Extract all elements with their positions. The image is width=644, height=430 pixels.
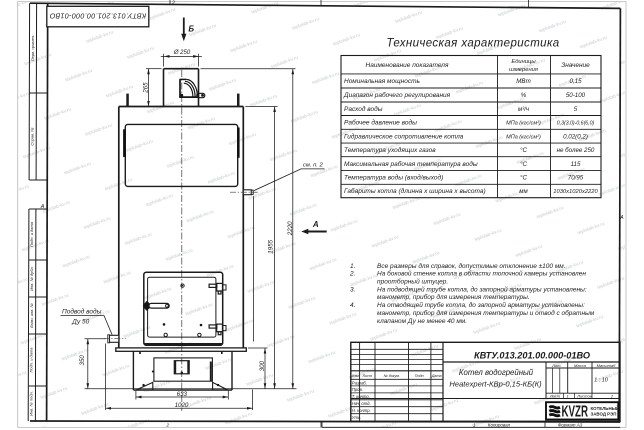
svg-text:1: 1 (566, 394, 568, 399)
svg-text:265: 265 (142, 82, 149, 94)
svg-text:Все размеры для справок, допус: Все размеры для справок, допустимые откл… (377, 262, 566, 270)
svg-text:МПа (кгс/см²): МПа (кгс/см²) (506, 121, 541, 127)
svg-text:МВт: МВт (516, 78, 530, 85)
svg-text:Масса: Масса (574, 363, 587, 368)
svg-text:Наименование показателя: Наименование показателя (366, 62, 449, 69)
svg-text:Лист: Лист (362, 374, 373, 378)
svg-text:Инв. № дубл.: Инв. № дубл. (29, 266, 34, 291)
svg-text:Б: Б (188, 25, 194, 34)
svg-text:Формат А3: Формат А3 (558, 422, 583, 427)
svg-text:115: 115 (571, 161, 581, 168)
svg-text:Т. контр.: Т. контр. (352, 394, 370, 399)
svg-text:Ø 250: Ø 250 (173, 50, 191, 56)
svg-text:Дата: Дата (431, 374, 442, 378)
svg-text:1030х1020х2220: 1030х1020х2220 (553, 189, 598, 195)
svg-text:4.: 4. (350, 302, 356, 309)
svg-text:Максимальная рабочая температу: Максимальная рабочая температура воды (344, 160, 478, 168)
svg-text:Перв. примен.: Перв. примен. (30, 35, 35, 62)
svg-text:клапаном Ду не менее 40 мм.: клапаном Ду не менее 40 мм. (377, 318, 467, 325)
svg-text:Лист: Лист (549, 394, 561, 399)
svg-text:300: 300 (259, 360, 266, 371)
svg-text:Взам. инв. №: Взам. инв. № (29, 302, 34, 327)
svg-text:Пров.: Пров. (352, 387, 363, 392)
svg-text:На боковой стенке котла в обла: На боковой стенке котла в области топочн… (377, 270, 586, 278)
svg-text:Листов: Листов (576, 394, 592, 399)
svg-text:МПа (кгс/см²): МПа (кгс/см²) (506, 134, 541, 140)
svg-text:70/95: 70/95 (568, 175, 584, 182)
svg-text:На отводящей трубе котла, до з: На отводящей трубе котла, до запорной ар… (377, 301, 585, 309)
svg-text:Котел водогрейный: Котел водогрейный (459, 368, 534, 377)
svg-text:Heatexpert-КВр-0,15-КБ(К): Heatexpert-КВр-0,15-КБ(К) (449, 379, 542, 388)
svg-text:Рабочее давление воды: Рабочее давление воды (344, 119, 417, 127)
svg-text:А: А (312, 220, 319, 229)
svg-text:0,02(0,2): 0,02(0,2) (563, 133, 588, 140)
svg-text:манометр, прибор для измерения: манометр, прибор для измерения температу… (377, 293, 530, 301)
svg-text:1.: 1. (350, 263, 356, 270)
svg-text:Копировал: Копировал (488, 422, 511, 427)
svg-text:А: А (40, 204, 45, 210)
svg-text:Справ. №: Справ. № (30, 127, 35, 146)
svg-text:1020: 1020 (175, 402, 189, 409)
svg-text:°С: °С (520, 175, 527, 182)
svg-text:0,3(3,0)-0,6(6,0): 0,3(3,0)-0,6(6,0) (557, 121, 595, 127)
svg-text:КОТЕЛЬНЫЙ: КОТЕЛЬНЫЙ (591, 406, 620, 411)
svg-text:1 : 10: 1 : 10 (594, 377, 609, 383)
svg-text:1955: 1955 (267, 239, 274, 253)
svg-text:Н. контр.: Н. контр. (352, 408, 371, 413)
svg-text:5: 5 (574, 106, 578, 113)
svg-text:°С: °С (520, 147, 527, 154)
svg-text:Диапазон рабочего регулировани: Диапазон рабочего регулирования (343, 91, 451, 99)
svg-text:Подп. и дата: Подп. и дата (29, 347, 34, 373)
svg-text:%: % (521, 92, 527, 99)
svg-text:Температура воды (вход/выход): Температура воды (вход/выход) (344, 174, 443, 182)
svg-text:350: 350 (79, 355, 86, 366)
svg-text:Габариты котла (длинна х ширин: Габариты котла (длинна х ширина х высота… (344, 187, 486, 195)
svg-text:КВТУ.013.201.00.000-01ВО: КВТУ.013.201.00.000-01ВО (49, 11, 146, 20)
svg-text:измерения: измерения (509, 67, 538, 73)
svg-text:Единицы: Единицы (511, 59, 536, 65)
svg-text:Расход воды: Расход воды (344, 105, 383, 113)
svg-text:Нач. отд.: Нач. отд. (352, 401, 371, 406)
svg-text:мм: мм (519, 188, 528, 195)
svg-text:3.: 3. (350, 286, 356, 293)
svg-text:Подп.: Подп. (415, 374, 425, 378)
svg-text:На подводящей трубе котла, до: На подводящей трубе котла, до запорной а… (377, 285, 587, 293)
svg-text:0,15: 0,15 (569, 78, 582, 85)
svg-text:50-100: 50-100 (566, 92, 586, 99)
svg-text:ЗАВОД РЭП: ЗАВОД РЭП (591, 411, 617, 416)
svg-text:не более 250: не более 250 (557, 147, 595, 154)
svg-text:Подп. и дата: Подп. и дата (29, 221, 34, 247)
svg-text:Утв.: Утв. (352, 415, 362, 420)
svg-text:проотборный штуцер.: проотборный штуцер. (377, 277, 448, 285)
svg-text:Масштаб: Масштаб (597, 363, 616, 368)
svg-text:2: 2 (166, 423, 170, 428)
svg-text:Значение: Значение (561, 62, 590, 69)
svg-text:Инв. № подл.: Инв. № подл. (29, 391, 34, 416)
svg-text:Ду 50: Ду 50 (71, 319, 89, 326)
svg-text:Изм.: Изм. (352, 374, 360, 378)
svg-text:°С: °С (520, 161, 527, 168)
svg-text:Лит.: Лит. (551, 363, 561, 368)
svg-text:2: 2 (171, 1, 175, 7)
svg-text:Гидравлическое сопротивление к: Гидравлическое сопротивление котла (344, 132, 464, 140)
svg-text:КВТУ.013.201.00.000-01ВО: КВТУ.013.201.00.000-01ВО (474, 350, 590, 360)
svg-text:Техническая характеристика: Техническая характеристика (386, 38, 559, 50)
svg-text:Подвод воды: Подвод воды (62, 307, 102, 315)
svg-text:2220: 2220 (287, 221, 294, 236)
svg-text:А: А (619, 215, 624, 221)
svg-text:KVZR: KVZR (562, 404, 589, 421)
svg-text:2.: 2. (349, 271, 356, 278)
svg-text:№ докум.: № докум. (384, 374, 400, 378)
svg-text:633: 633 (177, 391, 188, 398)
svg-text:Разраб.: Разраб. (352, 381, 367, 386)
svg-text:см. п. 2: см. п. 2 (303, 162, 324, 168)
svg-text:Температура уходящих газов: Температура уходящих газов (344, 146, 436, 154)
svg-text:м³/ч: м³/ч (518, 106, 530, 113)
svg-text:Номинальная мощность: Номинальная мощность (344, 78, 421, 85)
svg-text:манометр, прибор для измерения: манометр, прибор для измерения температу… (377, 309, 595, 317)
